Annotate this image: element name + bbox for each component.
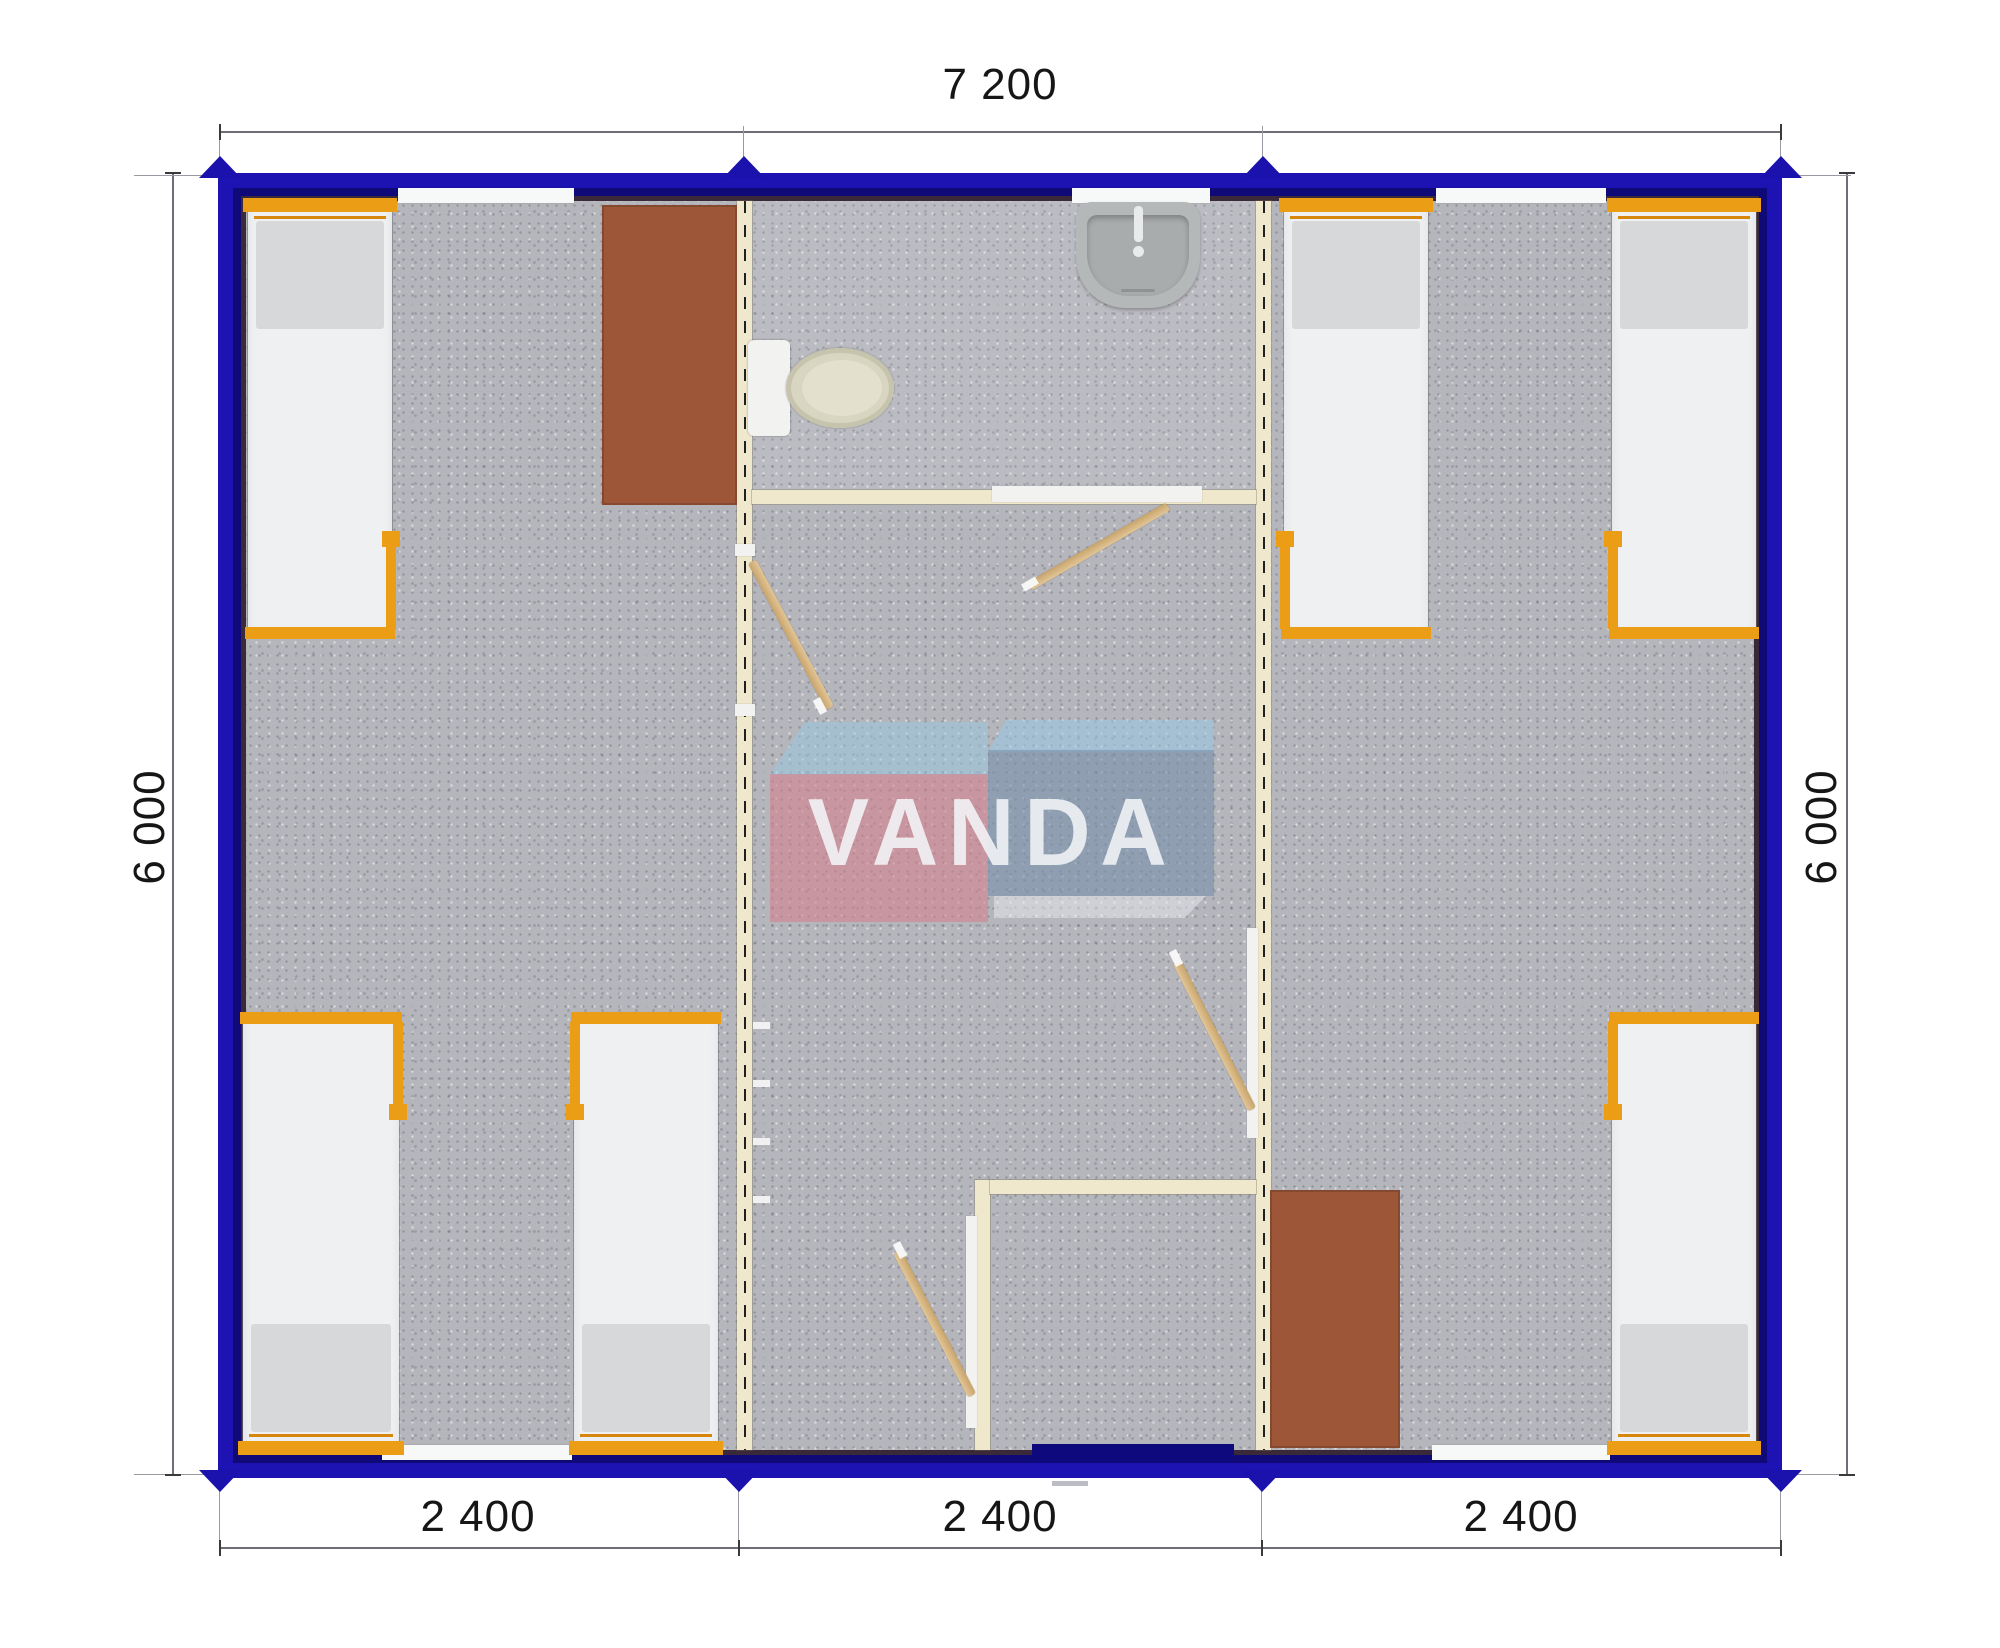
bed-frame-bar: [238, 1441, 404, 1455]
dim-label-right: 6 000: [1797, 727, 1847, 927]
bed-frame-bar: [245, 627, 395, 639]
bed-frame-post: [570, 1022, 580, 1110]
bed-frame-bar: [1609, 1012, 1759, 1024]
dim-tick: [1780, 1540, 1782, 1556]
bed-pillow: [1620, 221, 1748, 329]
window-bottom-left: [382, 1445, 572, 1460]
bed: [243, 1016, 399, 1450]
bed-pillow: [1292, 221, 1420, 329]
left-room-door-jamb: [735, 704, 755, 716]
logo-text: VANDA: [788, 778, 1195, 888]
dim-tick: [1839, 172, 1855, 174]
toilet-tank: [748, 340, 790, 436]
dim-line-left: [172, 173, 174, 1476]
boundary-arrow-up: [1242, 156, 1284, 178]
boundary-arrow-down: [1760, 1470, 1802, 1492]
entry-door: [1032, 1444, 1234, 1462]
bed-frame-bar: [240, 1012, 402, 1024]
dim-label-top: 7 200: [900, 60, 1100, 110]
dim-tick: [219, 124, 221, 140]
bed-frame-bar: [569, 1441, 723, 1455]
logo-box-top-face: [770, 722, 988, 775]
bed-frame-line: [580, 1434, 712, 1437]
vestibule-wall-horizontal: [990, 1180, 1256, 1194]
bed-pillow: [251, 1324, 391, 1432]
partition-wall-right: [1256, 201, 1271, 1450]
faucet-icon: [1134, 206, 1143, 242]
vestibule-wall-vertical: [975, 1180, 990, 1450]
bed-pillow: [582, 1324, 710, 1432]
dim-tick: [219, 1540, 221, 1556]
bed-pillow: [256, 221, 384, 329]
boundary-arrow-down: [1241, 1470, 1283, 1492]
wall-centerline: [1263, 201, 1265, 1450]
bed-frame-bar: [1279, 198, 1433, 212]
bed-frame-line: [1290, 216, 1422, 219]
bed-frame-line: [1618, 1434, 1750, 1437]
wall-hook: [753, 1196, 770, 1203]
bed-frame-bar: [571, 1012, 721, 1024]
logo-box-top-face: [988, 720, 1214, 752]
bathroom-door-opening: [992, 486, 1202, 502]
dim-line-bottom: [220, 1547, 1782, 1549]
wall-hook: [753, 1138, 770, 1145]
left-room-door-jamb: [735, 544, 755, 556]
bed-frame-line: [249, 1434, 393, 1437]
bed-frame-post: [1608, 1022, 1618, 1110]
dim-tick: [165, 1474, 181, 1476]
bed-frame-post: [1608, 541, 1618, 629]
desk: [602, 205, 737, 505]
bed-frame-post: [393, 1022, 403, 1110]
bed-pillow: [1620, 1324, 1748, 1432]
sink-drain: [1121, 289, 1155, 292]
dim-label-left: 6 000: [125, 727, 175, 927]
dim-label-bottom-3: 2 400: [1411, 1492, 1631, 1542]
faucet-dot: [1133, 246, 1144, 257]
dim-tick: [1261, 1540, 1263, 1556]
floor-plan-canvas: 7 200 6 000 6 000 2 400 2 400 2 400: [0, 0, 2000, 1648]
dim-label-bottom-1: 2 400: [368, 1492, 588, 1542]
wall-hook: [753, 1080, 770, 1087]
dim-label-bottom-2: 2 400: [890, 1492, 1110, 1542]
bed-frame-bar: [1607, 1441, 1761, 1455]
vanda-watermark-logo: VANDA: [762, 712, 1222, 927]
boundary-arrow-up: [723, 156, 765, 178]
window-bathroom: [1072, 188, 1210, 203]
bed: [1284, 203, 1428, 635]
dim-tick: [1780, 124, 1782, 140]
window-top-right: [1436, 188, 1606, 203]
desk: [1270, 1190, 1400, 1448]
bed: [574, 1016, 718, 1450]
wall-hook: [753, 1022, 770, 1029]
entry-threshold: [1052, 1481, 1088, 1486]
dim-line-top: [220, 131, 1782, 133]
boundary-arrow-up: [199, 156, 241, 178]
bed-frame-bar: [1609, 627, 1759, 639]
bed-frame-line: [254, 216, 386, 219]
bed-frame-bar: [1281, 627, 1431, 639]
bed: [1612, 1016, 1756, 1450]
bed-frame-bar: [1607, 198, 1761, 212]
dim-tick: [738, 1540, 740, 1556]
dim-line-right: [1846, 173, 1848, 1476]
window-bottom-right: [1432, 1445, 1610, 1460]
window-top-left: [398, 188, 574, 203]
bed-frame-post: [1280, 541, 1290, 629]
boundary-arrow-down: [718, 1470, 760, 1492]
bed: [1612, 203, 1756, 635]
boundary-arrow-up: [1760, 156, 1802, 178]
toilet: [786, 348, 894, 428]
dim-tick: [165, 172, 181, 174]
sink: [1076, 202, 1200, 308]
bed-frame-post: [386, 541, 396, 629]
boundary-arrow-down: [199, 1470, 241, 1492]
bed-frame-line: [1618, 216, 1750, 219]
bed: [248, 203, 392, 635]
wall-centerline: [744, 201, 746, 1450]
logo-box-bottom-face: [994, 896, 1206, 918]
bed-frame-bar: [243, 198, 397, 212]
dim-tick: [1839, 1474, 1855, 1476]
